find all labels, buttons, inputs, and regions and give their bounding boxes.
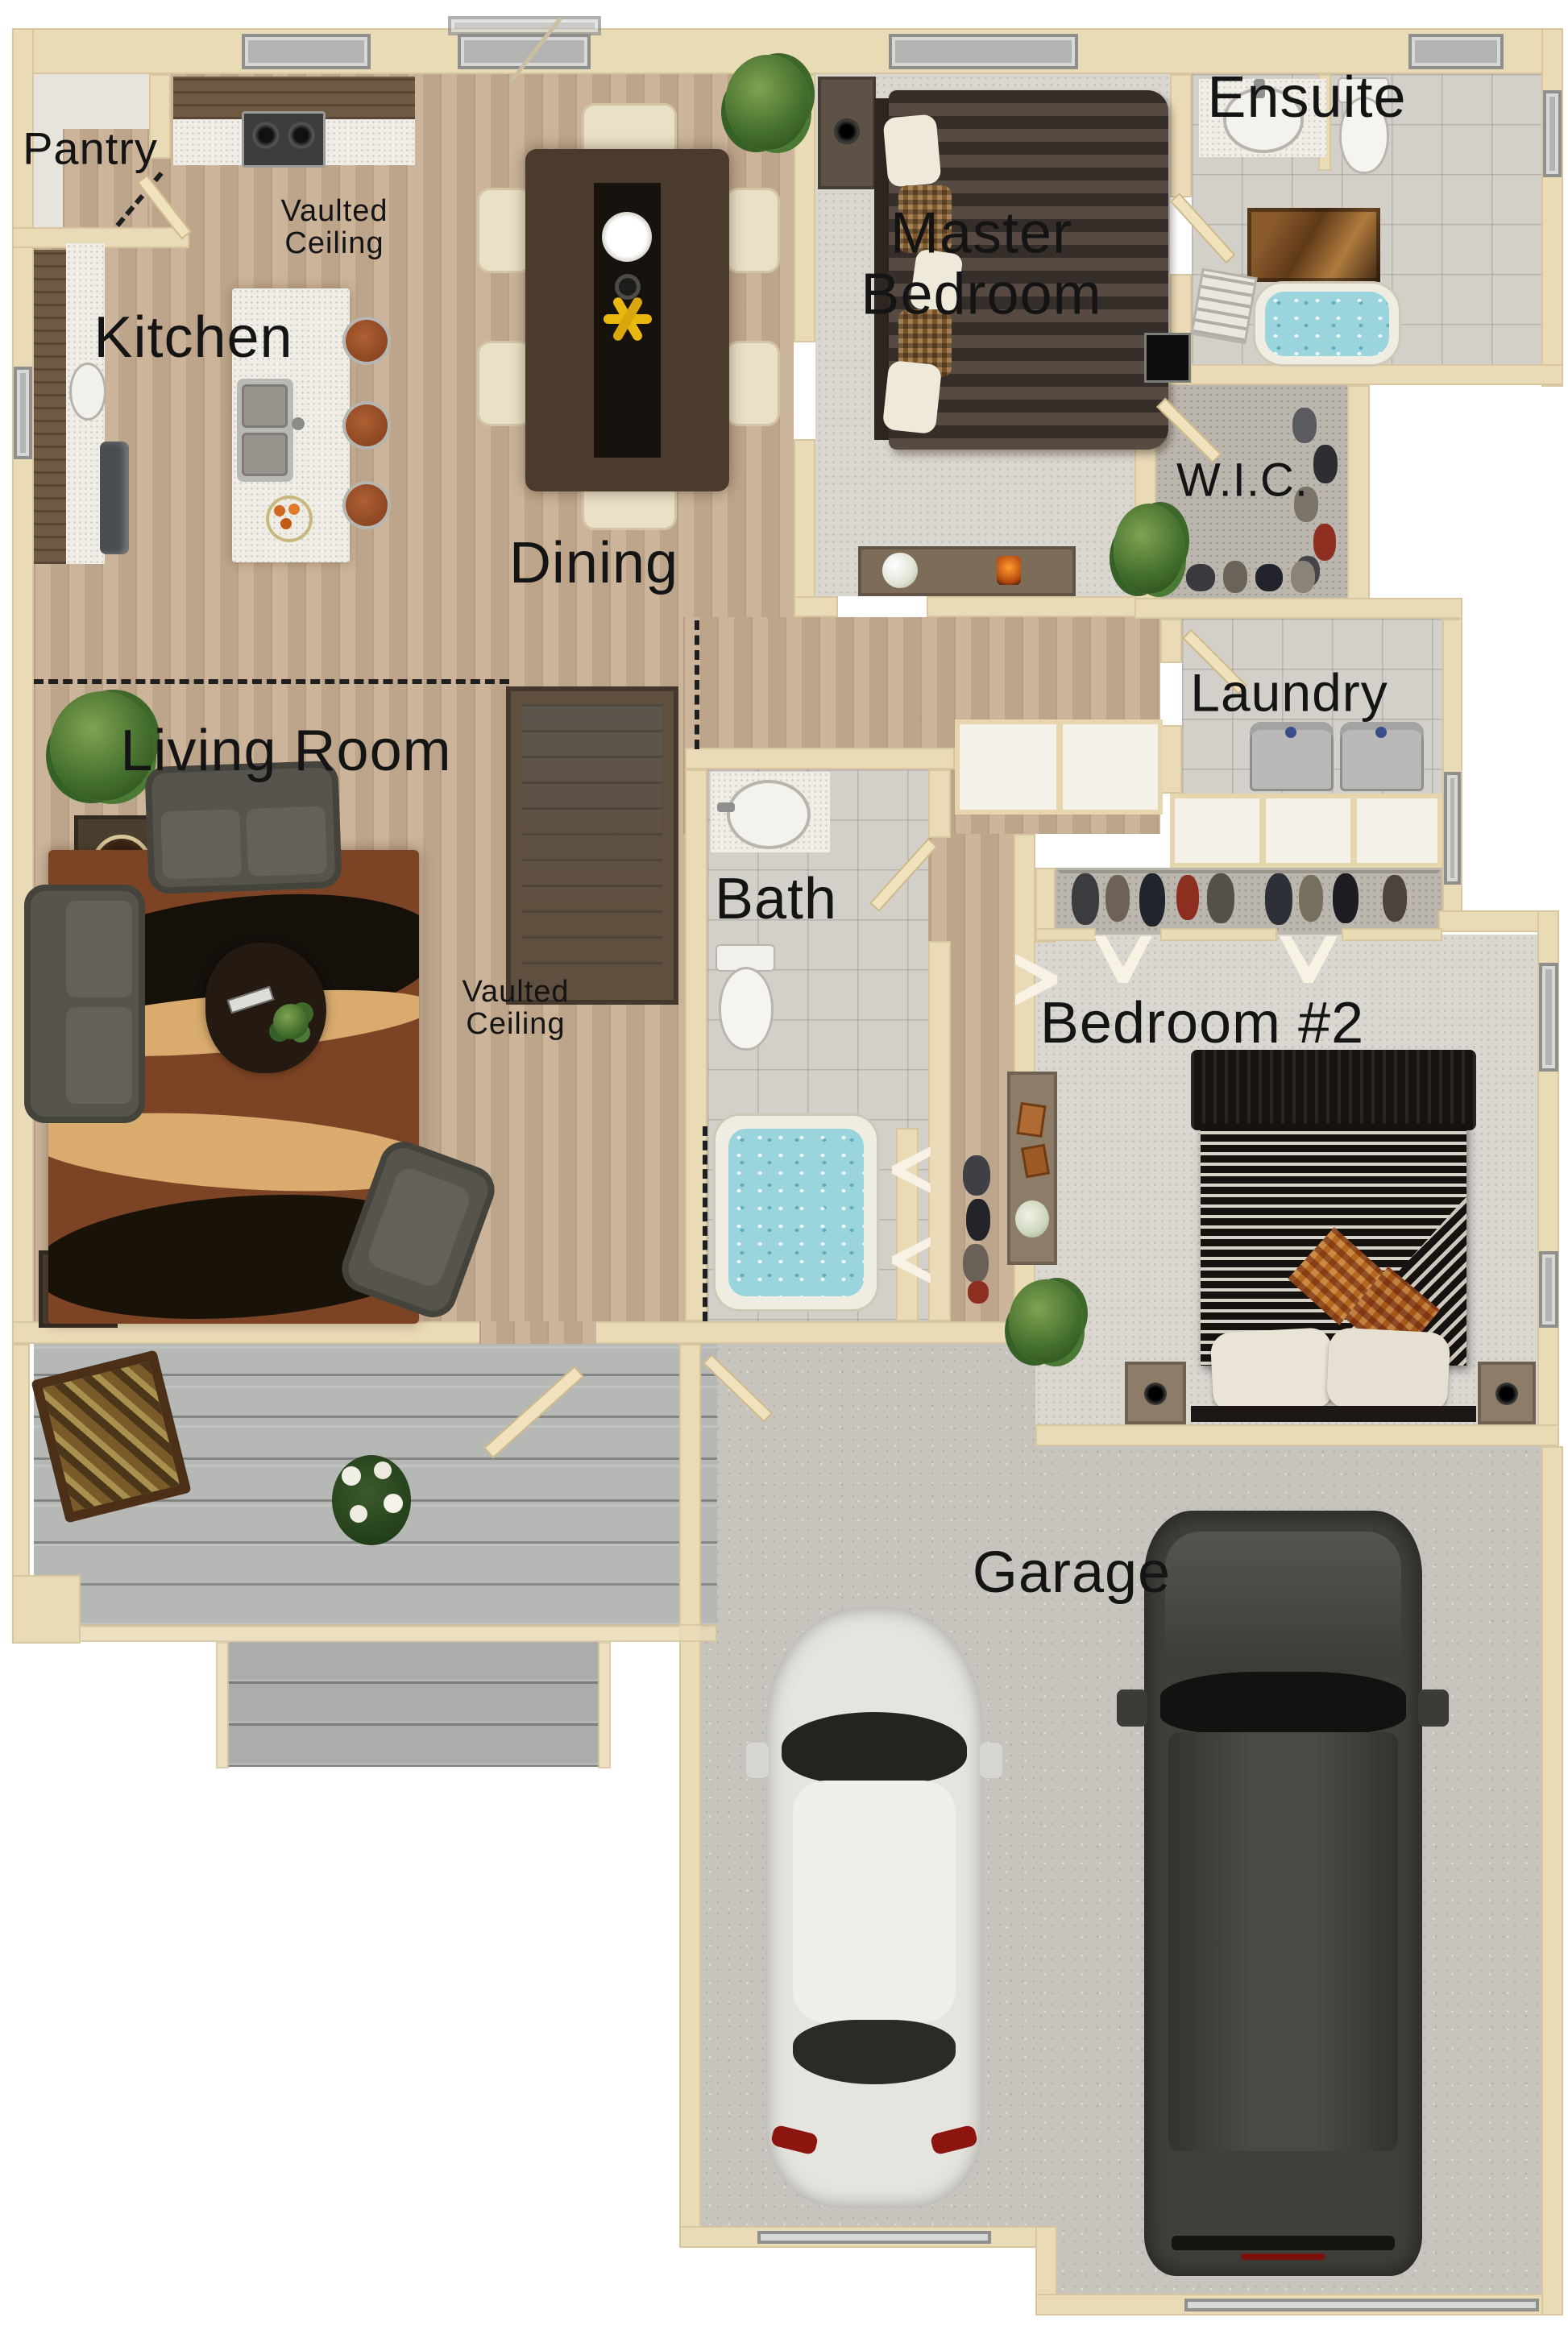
bath-label: Bath bbox=[715, 869, 837, 931]
fruit-bowl bbox=[266, 495, 313, 542]
car-rear-window bbox=[793, 2020, 956, 2084]
dining-plant bbox=[725, 55, 810, 150]
clothes-item bbox=[963, 1155, 990, 1196]
clothes-item bbox=[966, 1199, 990, 1241]
sofa-cushion bbox=[246, 806, 327, 876]
car-mirror bbox=[746, 1743, 769, 1778]
dining-chair bbox=[725, 188, 780, 273]
sofa-cushion bbox=[365, 1165, 474, 1290]
suv-taillight bbox=[1241, 2253, 1325, 2260]
wall-laundry-left-top bbox=[1160, 619, 1182, 663]
vaulted-line2: Ceiling bbox=[462, 1009, 569, 1041]
vaulted-ceiling-label-kitchen: Vaulted Ceiling bbox=[280, 196, 388, 260]
wall-left bbox=[12, 28, 34, 1344]
wall-wic-bottom bbox=[1135, 598, 1462, 619]
washer bbox=[1250, 722, 1334, 791]
deck-steps bbox=[227, 1642, 599, 1767]
vaulted-line1: Vaulted bbox=[462, 976, 569, 1009]
ensuite-shower-mat bbox=[1144, 333, 1191, 383]
laundry-label: Laundry bbox=[1190, 665, 1388, 720]
clothes-item bbox=[968, 1281, 989, 1304]
clothes-item bbox=[963, 1244, 989, 1283]
flower-icon bbox=[384, 1494, 403, 1513]
bath-sink bbox=[727, 780, 811, 849]
bar-stool bbox=[346, 404, 388, 446]
fruit-icon bbox=[274, 505, 285, 516]
sink-basin bbox=[242, 384, 288, 428]
clothes-item bbox=[1291, 561, 1315, 593]
kitchen-label: Kitchen bbox=[93, 308, 292, 369]
wall-bath-top bbox=[685, 748, 955, 769]
bedroom2-bed bbox=[1191, 1050, 1476, 1422]
burner-icon bbox=[288, 122, 315, 149]
wall-ensuite-bottom bbox=[1135, 364, 1563, 385]
clothes-item bbox=[1176, 875, 1199, 920]
window-laundry-right bbox=[1444, 772, 1461, 885]
clothes-item bbox=[1105, 875, 1130, 922]
deck-corner-post bbox=[12, 1575, 81, 1644]
bedroom2-closet-clothes bbox=[1064, 872, 1434, 931]
picture-frame bbox=[1021, 1144, 1050, 1179]
kitchen-wall-sink bbox=[69, 363, 106, 421]
clothes-item bbox=[1333, 873, 1359, 923]
bedroom2-label: Bedroom #2 bbox=[1040, 993, 1364, 1055]
wall-bedroom2-bottom bbox=[1035, 1424, 1559, 1446]
vaulted-ceiling-label-living: Vaulted Ceiling bbox=[462, 976, 569, 1041]
wall-wic-right bbox=[1347, 385, 1370, 619]
flower-vase bbox=[882, 553, 918, 588]
front-door-opening bbox=[479, 1321, 596, 1344]
clothes-item bbox=[1299, 875, 1323, 922]
sofa-cushion bbox=[66, 901, 132, 997]
window-ensuite-top bbox=[1408, 34, 1504, 69]
garage-door-left bbox=[757, 2231, 991, 2244]
pillow bbox=[1325, 1327, 1450, 1414]
pillow bbox=[882, 114, 941, 187]
wall-dining-master-lower bbox=[794, 439, 815, 617]
ensuite-towel-shelf bbox=[1190, 268, 1258, 345]
coffee-table bbox=[205, 943, 326, 1073]
wall-master-ensuite bbox=[1170, 74, 1192, 197]
dining-chair bbox=[477, 188, 532, 273]
sink-basin bbox=[242, 433, 288, 476]
clothes-item bbox=[1255, 564, 1283, 591]
dryer-control-icon bbox=[1375, 727, 1387, 738]
suv-truck bbox=[1144, 1511, 1422, 2276]
sofa-cushion bbox=[66, 1007, 132, 1104]
island-faucet-icon bbox=[292, 417, 305, 430]
pillow bbox=[882, 360, 943, 434]
closet-divider bbox=[1056, 724, 1063, 810]
car-mirror bbox=[980, 1743, 1002, 1778]
ensuite-bathtub bbox=[1255, 284, 1399, 364]
wall-laundry-left-bot bbox=[1160, 725, 1182, 794]
garage-door-right bbox=[1184, 2299, 1539, 2311]
flower-vase bbox=[1015, 1200, 1049, 1238]
dining-table bbox=[525, 149, 729, 491]
dining-chair bbox=[725, 341, 780, 426]
pantry-label: Pantry bbox=[23, 126, 158, 173]
deck-step-rail bbox=[216, 1642, 229, 1768]
remote-control bbox=[227, 986, 275, 1014]
wic-shoes-row bbox=[1183, 556, 1344, 596]
speaker-icon bbox=[834, 118, 860, 144]
bedroom2-dresser bbox=[1007, 1072, 1057, 1265]
car-windshield bbox=[782, 1712, 967, 1785]
lamp-icon bbox=[1495, 1383, 1518, 1405]
clothes-item bbox=[1292, 408, 1317, 443]
clothes-item bbox=[1313, 445, 1338, 483]
island-sink bbox=[237, 379, 293, 482]
car-roof bbox=[793, 1781, 956, 2022]
ensuite-label: Ensuite bbox=[1207, 68, 1406, 129]
master-line2: Bedroom bbox=[861, 264, 1101, 325]
suv-hood bbox=[1165, 1532, 1401, 1677]
flower-icon bbox=[350, 1505, 367, 1523]
bedroom2-plant bbox=[1009, 1279, 1083, 1363]
entry-closet-clothes bbox=[939, 1152, 1008, 1305]
window-ensuite-right bbox=[1543, 90, 1562, 177]
washer-control-icon bbox=[1285, 727, 1296, 738]
vaulted-line1: Vaulted bbox=[280, 196, 388, 228]
dryer bbox=[1340, 722, 1424, 791]
wall-bath-right-top bbox=[928, 769, 951, 838]
laundry-linen-closet bbox=[1170, 794, 1442, 868]
plate bbox=[602, 212, 652, 262]
staircase bbox=[506, 686, 678, 1005]
master-plant bbox=[1114, 504, 1184, 594]
stair-treads bbox=[522, 704, 662, 988]
wall-garage-right bbox=[1541, 1446, 1563, 2315]
footboard bbox=[1191, 1406, 1476, 1422]
clothes-item bbox=[1223, 561, 1247, 593]
deck-flower-pot bbox=[332, 1455, 411, 1545]
garage-label: Garage bbox=[973, 1543, 1171, 1604]
ensuite-rug bbox=[1247, 208, 1380, 282]
clothes-item bbox=[1207, 873, 1234, 923]
fruit-icon bbox=[280, 518, 292, 529]
closet-divider bbox=[1350, 798, 1357, 863]
dark-bowl bbox=[615, 274, 641, 300]
nightstand bbox=[1478, 1362, 1536, 1424]
faucet-icon bbox=[717, 802, 735, 812]
suv-tailgate bbox=[1172, 2236, 1395, 2250]
table-plant bbox=[273, 1004, 309, 1039]
kitchen-counter-left-dark bbox=[34, 250, 66, 564]
bath-water bbox=[1265, 292, 1389, 356]
patio-door-rail bbox=[448, 16, 601, 35]
window-kitchen-top bbox=[242, 34, 371, 69]
flower-icon bbox=[374, 1461, 392, 1479]
suv-roof bbox=[1168, 1732, 1398, 2151]
car-taillight bbox=[770, 2125, 819, 2156]
refrigerator bbox=[100, 442, 129, 554]
vaulted-ceiling-line-v bbox=[695, 620, 699, 749]
dining-chair bbox=[477, 341, 532, 426]
nightstand bbox=[1125, 1362, 1186, 1424]
closet-divider bbox=[1259, 798, 1266, 863]
window-kitchen-left bbox=[14, 367, 32, 459]
bath-water bbox=[728, 1129, 864, 1296]
candle-decor bbox=[997, 556, 1021, 585]
clothes-item bbox=[1139, 873, 1165, 927]
vaulted-line2: Ceiling bbox=[280, 228, 388, 260]
deck-step-rail bbox=[598, 1642, 611, 1768]
bed-canopy bbox=[1191, 1050, 1476, 1130]
floor-plan: Pantry Vaulted Ceiling Kitchen Dining Ma… bbox=[0, 0, 1568, 2330]
loveseat bbox=[24, 885, 145, 1123]
flower-icon bbox=[342, 1466, 361, 1486]
dining-label: Dining bbox=[509, 533, 678, 595]
window-bedroom2-right2 bbox=[1539, 1251, 1558, 1328]
deck-rail-bottom bbox=[12, 1624, 717, 1642]
clothes-item bbox=[1383, 875, 1407, 922]
suv-mirror bbox=[1117, 1689, 1147, 1727]
wall-master-bottom bbox=[794, 596, 838, 617]
stove bbox=[242, 111, 326, 168]
living-room-label: Living Room bbox=[120, 721, 451, 782]
picture-frame bbox=[1016, 1102, 1046, 1138]
vaulted-ceiling-line bbox=[34, 679, 509, 684]
wall-right-ensuite bbox=[1541, 28, 1563, 387]
car-taillight bbox=[930, 2125, 979, 2156]
burner-icon bbox=[252, 122, 280, 149]
suv-windshield bbox=[1160, 1672, 1406, 1735]
master-bedroom-label: Master Bedroom bbox=[861, 203, 1101, 325]
suv-mirror bbox=[1418, 1689, 1449, 1727]
garage-ceiling-line bbox=[703, 1126, 707, 1321]
bar-stool bbox=[346, 320, 388, 362]
master-line1: Master bbox=[861, 203, 1101, 264]
hall-closet bbox=[955, 719, 1163, 815]
fruit-icon bbox=[288, 504, 300, 515]
wall-master-bottom2 bbox=[927, 596, 1160, 617]
wall-garage-left bbox=[679, 1344, 701, 2248]
clothes-item bbox=[1186, 564, 1215, 591]
master-tv-cabinet bbox=[818, 77, 876, 189]
bath-tub bbox=[716, 1116, 877, 1309]
clothes-item bbox=[1265, 873, 1292, 925]
lamp-icon bbox=[1144, 1383, 1167, 1405]
window-bedroom2-right1 bbox=[1539, 963, 1558, 1072]
window-master-top bbox=[889, 34, 1078, 69]
sofa-cushion bbox=[160, 809, 242, 879]
clothes-item bbox=[1072, 873, 1099, 925]
pillow bbox=[1209, 1327, 1334, 1414]
bath-toilet bbox=[712, 944, 775, 1049]
white-car bbox=[765, 1607, 983, 2208]
toilet-bowl bbox=[719, 967, 774, 1051]
bar-stool bbox=[346, 484, 388, 526]
wic-label: W.I.C. bbox=[1176, 457, 1309, 506]
master-dresser bbox=[858, 546, 1076, 596]
